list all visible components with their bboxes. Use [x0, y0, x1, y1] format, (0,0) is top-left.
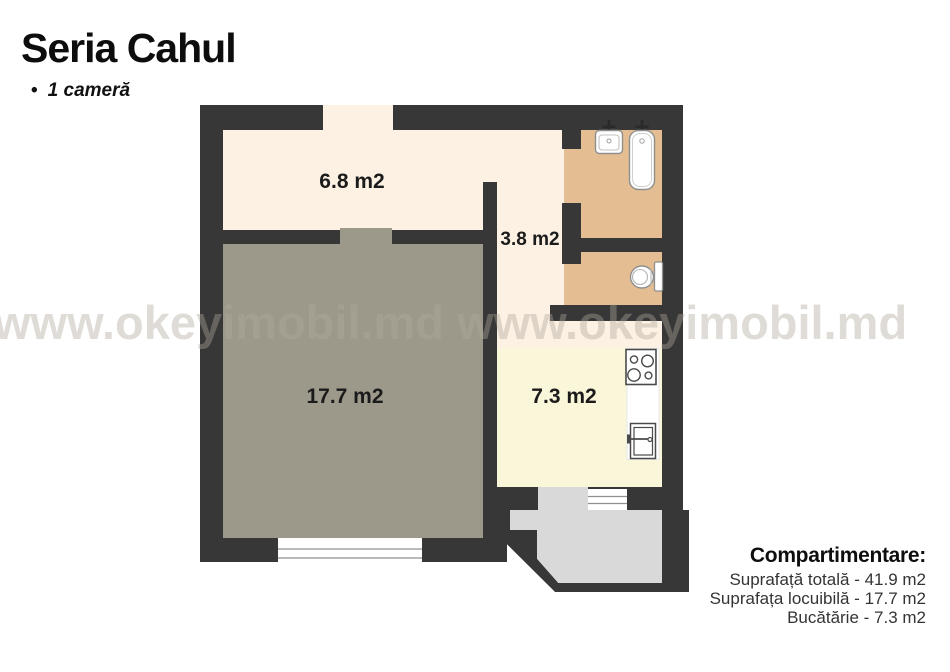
page-subtitle: •1 cameră — [31, 79, 130, 103]
corridor-area-label: 3.8 m2 — [500, 229, 559, 251]
legend-total-area: Suprafață totală - 41.9 m2 — [710, 570, 926, 589]
kitchen-area-label: 7.3 m2 — [531, 385, 596, 409]
kitchen-sink-icon — [627, 424, 656, 459]
stove-icon — [626, 350, 656, 385]
legend-title: Compartimentare: — [710, 544, 926, 568]
subtitle-text: 1 cameră — [48, 80, 130, 101]
fixtures-layer — [200, 103, 689, 595]
toilet-icon — [631, 262, 663, 291]
page-title: Seria Cahul — [21, 24, 236, 72]
bath-sink-icon — [596, 120, 623, 154]
bathtub-icon — [630, 120, 655, 190]
balcony-window-icon — [588, 489, 627, 510]
floor-plan-page: Seria Cahul •1 cameră www.okeyimobil.md … — [0, 0, 950, 672]
hallway-area-label: 6.8 m2 — [319, 170, 384, 194]
legend-kitchen-area: Bucătărie - 7.3 m2 — [710, 608, 926, 627]
bullet-icon: • — [31, 80, 38, 101]
legend-living-area: Suprafața locuibilă - 17.7 m2 — [710, 589, 926, 608]
watermark: www.okeyimobil.md www.okeyimobil.md — [0, 299, 907, 346]
living-area-label: 17.7 m2 — [306, 385, 383, 409]
living-window-icon — [278, 538, 422, 562]
legend: Compartimentare: Suprafață totală - 41.9… — [710, 544, 926, 627]
